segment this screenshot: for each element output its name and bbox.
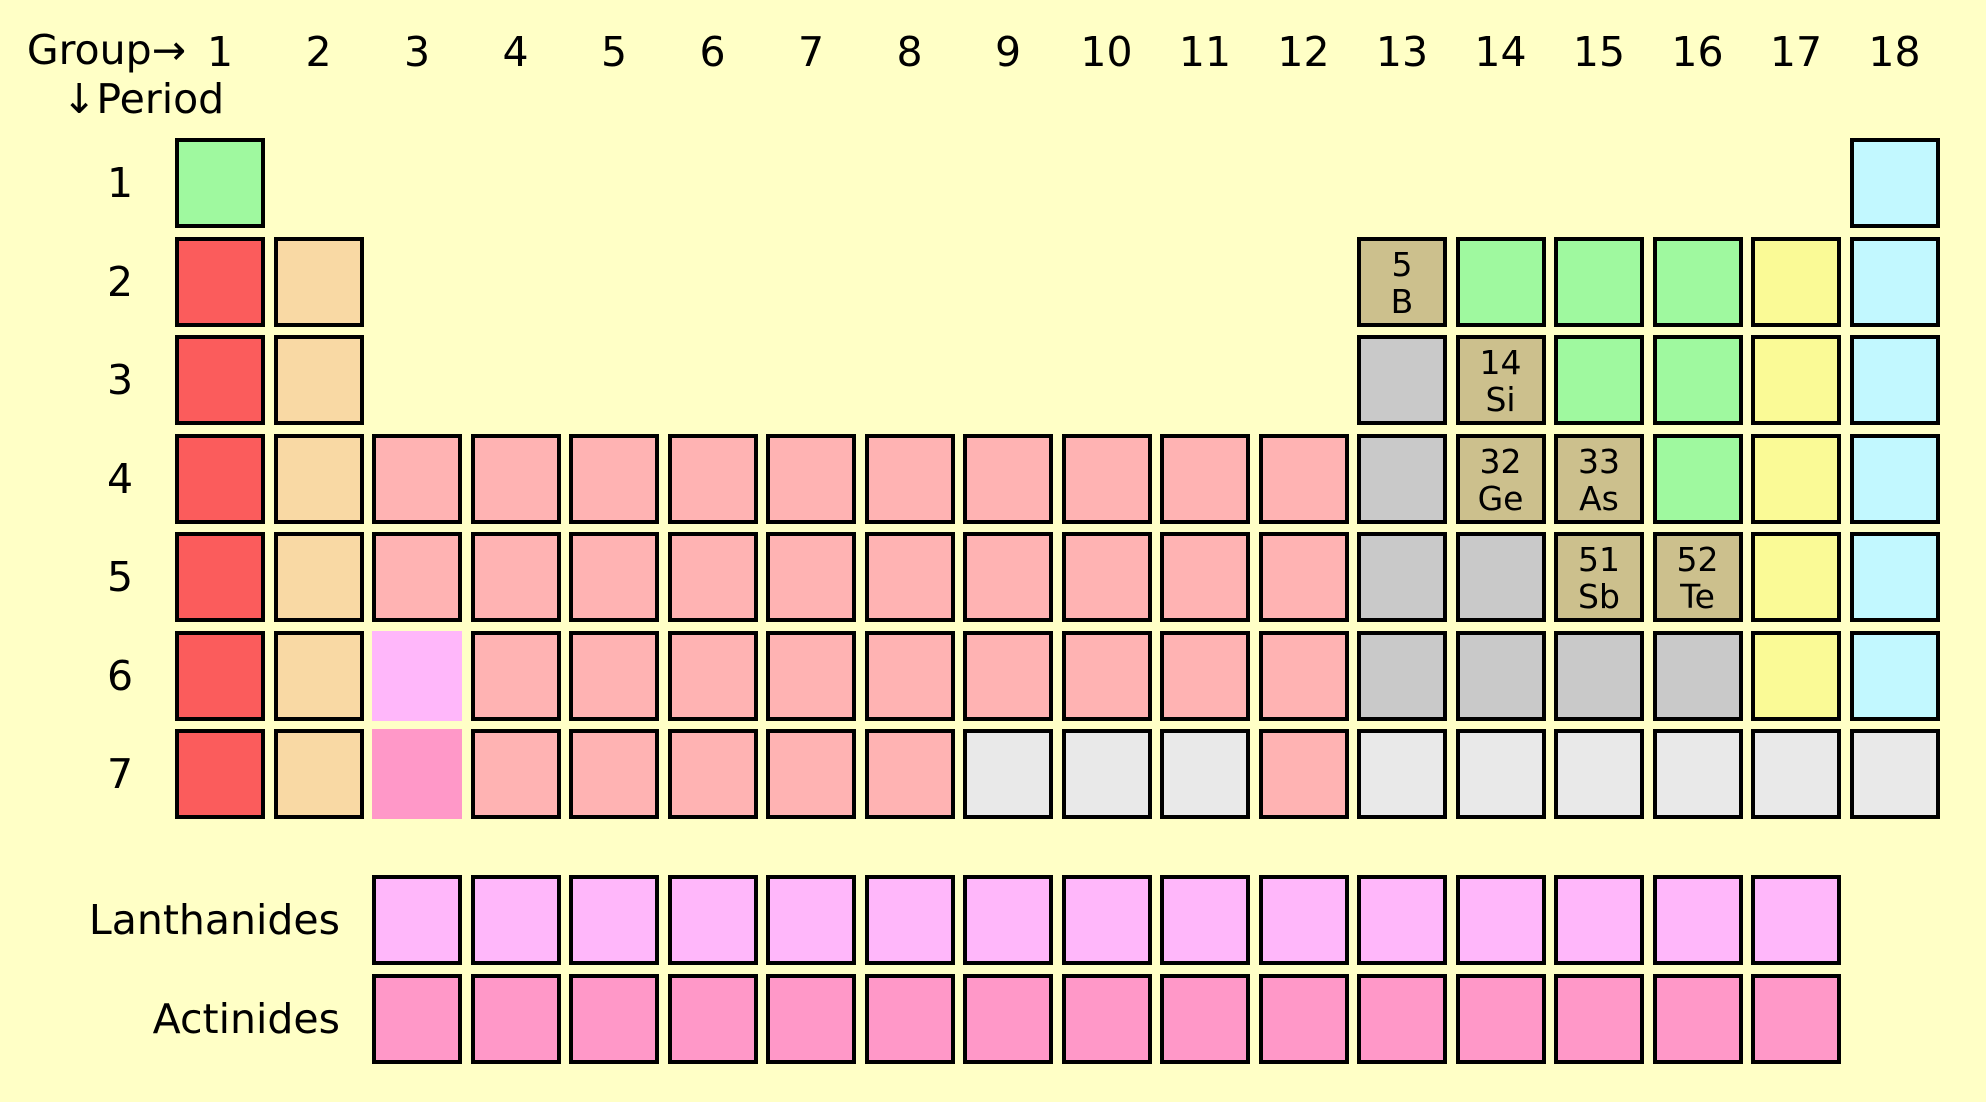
element-symbol: Si <box>1485 381 1515 418</box>
element-cell <box>175 434 265 524</box>
element-cell <box>1357 631 1447 721</box>
actinide-cell <box>569 974 659 1064</box>
group-number-label: 10 <box>1062 24 1152 80</box>
lanthanide-cell <box>1259 875 1349 965</box>
element-cell <box>1653 434 1743 524</box>
element-cell <box>668 631 758 721</box>
lanthanide-cell <box>1751 875 1841 965</box>
group-number-label: 9 <box>963 24 1053 80</box>
period-number-label: 7 <box>85 729 155 819</box>
actinide-cell <box>471 974 561 1064</box>
atomic-number: 14 <box>1480 344 1522 381</box>
element-cell <box>1160 532 1250 622</box>
element-cell <box>1751 434 1841 524</box>
group-number-label: 13 <box>1357 24 1447 80</box>
element-cell <box>766 434 856 524</box>
element-cell <box>274 729 364 819</box>
element-cell-te: 52Te <box>1653 532 1743 622</box>
element-cell <box>471 434 561 524</box>
element-symbol: As <box>1579 480 1619 517</box>
element-cell <box>1554 335 1644 425</box>
element-cell <box>1062 434 1152 524</box>
period-axis-label: ↓Period <box>62 76 224 122</box>
element-cell <box>471 532 561 622</box>
group-axis-label: Group→ <box>20 27 186 73</box>
element-cell-b: 5B <box>1357 237 1447 327</box>
element-cell <box>1653 237 1743 327</box>
element-cell <box>1357 335 1447 425</box>
atomic-number: 5 <box>1392 246 1413 283</box>
actinide-cell <box>1062 974 1152 1064</box>
actinide-cell <box>1751 974 1841 1064</box>
element-cell <box>1850 532 1940 622</box>
element-cell <box>1653 631 1743 721</box>
actinide-cell <box>372 974 462 1064</box>
element-cell <box>569 434 659 524</box>
actinide-cell <box>1653 974 1743 1064</box>
element-symbol: Ge <box>1478 480 1524 517</box>
element-cell <box>274 237 364 327</box>
element-cell <box>175 631 265 721</box>
actinide-cell <box>766 974 856 1064</box>
actinide-cell <box>963 974 1053 1064</box>
actinide-cell <box>1357 974 1447 1064</box>
element-cell <box>372 532 462 622</box>
lanthanide-cell <box>1062 875 1152 965</box>
element-cell <box>1850 434 1940 524</box>
element-symbol: Sb <box>1578 578 1620 615</box>
period-number-label: 3 <box>85 335 155 425</box>
element-cell <box>175 729 265 819</box>
element-cell <box>1357 532 1447 622</box>
element-cell <box>1160 631 1250 721</box>
element-cell <box>1751 335 1841 425</box>
element-cell <box>569 631 659 721</box>
actinide-cell <box>1160 974 1250 1064</box>
actinide-cell <box>1456 974 1546 1064</box>
period-number-label: 1 <box>85 138 155 228</box>
element-cell <box>1062 729 1152 819</box>
element-cell <box>766 532 856 622</box>
element-cell <box>1456 532 1546 622</box>
lanthanide-cell <box>1357 875 1447 965</box>
element-cell <box>963 729 1053 819</box>
element-cell <box>274 335 364 425</box>
lanthanide-cell <box>1653 875 1743 965</box>
lanthanide-cell <box>569 875 659 965</box>
element-cell <box>175 335 265 425</box>
atomic-number: 52 <box>1677 541 1719 578</box>
lanthanide-cell <box>471 875 561 965</box>
actinide-cell <box>865 974 955 1064</box>
element-cell <box>569 532 659 622</box>
element-cell <box>1160 434 1250 524</box>
element-cell <box>1259 631 1349 721</box>
group-number-label: 16 <box>1653 24 1743 80</box>
element-cell <box>471 631 561 721</box>
element-cell <box>1850 237 1940 327</box>
element-cell <box>1357 434 1447 524</box>
actinide-cell <box>1259 974 1349 1064</box>
element-cell <box>1751 729 1841 819</box>
element-cell <box>963 631 1053 721</box>
period-number-label: 6 <box>85 631 155 721</box>
element-cell <box>175 237 265 327</box>
element-cell <box>668 729 758 819</box>
actinide-cell <box>668 974 758 1064</box>
element-cell <box>865 729 955 819</box>
element-cell <box>274 631 364 721</box>
lanthanide-cell <box>1456 875 1546 965</box>
element-cell <box>175 138 265 228</box>
element-cell <box>372 729 462 819</box>
lanthanide-cell <box>372 875 462 965</box>
element-cell <box>1554 729 1644 819</box>
element-cell <box>1160 729 1250 819</box>
element-cell <box>1653 729 1743 819</box>
element-cell <box>274 532 364 622</box>
element-cell <box>1554 631 1644 721</box>
element-cell <box>963 434 1053 524</box>
group-number-label: 11 <box>1160 24 1250 80</box>
element-symbol: B <box>1391 283 1414 320</box>
element-cell <box>1259 434 1349 524</box>
element-cell <box>569 729 659 819</box>
element-cell <box>1062 532 1152 622</box>
element-cell <box>1357 729 1447 819</box>
lanthanide-cell <box>865 875 955 965</box>
element-cell <box>668 532 758 622</box>
element-cell <box>865 631 955 721</box>
group-number-label: 14 <box>1456 24 1546 80</box>
actinide-cell <box>1554 974 1644 1064</box>
lanthanide-cell <box>1554 875 1644 965</box>
period-axis-text: Period <box>96 75 224 123</box>
atomic-number: 33 <box>1578 443 1620 480</box>
group-axis-text: Group <box>27 26 152 74</box>
element-cell <box>274 434 364 524</box>
element-cell <box>1456 729 1546 819</box>
element-cell <box>1850 335 1940 425</box>
period-number-label: 4 <box>85 434 155 524</box>
group-number-label: 3 <box>372 24 462 80</box>
group-number-label: 4 <box>471 24 561 80</box>
element-cell <box>1259 532 1349 622</box>
group-number-label: 12 <box>1259 24 1349 80</box>
atomic-number: 32 <box>1480 443 1522 480</box>
group-number-label: 1 <box>175 24 265 80</box>
atomic-number: 51 <box>1578 541 1620 578</box>
periodic-table-diagram: Group→ ↓Period 1234567891011121314151617… <box>0 0 1986 1102</box>
element-cell <box>1751 631 1841 721</box>
lanthanide-cell <box>668 875 758 965</box>
element-cell <box>471 729 561 819</box>
element-cell <box>963 532 1053 622</box>
group-number-label: 15 <box>1554 24 1644 80</box>
element-cell-sb: 51Sb <box>1554 532 1644 622</box>
group-number-label: 18 <box>1850 24 1940 80</box>
actinides-label: Actinides <box>20 974 340 1064</box>
element-cell <box>1850 729 1940 819</box>
element-cell <box>1653 335 1743 425</box>
element-cell <box>372 434 462 524</box>
element-cell <box>1751 532 1841 622</box>
element-cell <box>865 532 955 622</box>
element-cell-ge: 32Ge <box>1456 434 1546 524</box>
lanthanides-label: Lanthanides <box>20 875 340 965</box>
lanthanide-cell <box>963 875 1053 965</box>
element-cell <box>372 631 462 721</box>
group-number-label: 17 <box>1751 24 1841 80</box>
element-cell-as: 33As <box>1554 434 1644 524</box>
group-number-label: 2 <box>274 24 364 80</box>
lanthanide-cell <box>1160 875 1250 965</box>
element-cell <box>175 532 265 622</box>
element-cell <box>1554 237 1644 327</box>
element-cell <box>865 434 955 524</box>
element-cell <box>1751 237 1841 327</box>
period-number-label: 5 <box>85 532 155 622</box>
element-cell-si: 14Si <box>1456 335 1546 425</box>
element-symbol: Te <box>1680 578 1715 615</box>
group-number-label: 7 <box>766 24 856 80</box>
element-cell <box>1850 138 1940 228</box>
group-number-label: 8 <box>865 24 955 80</box>
lanthanide-cell <box>766 875 856 965</box>
element-cell <box>1850 631 1940 721</box>
group-number-label: 6 <box>668 24 758 80</box>
element-cell <box>1259 729 1349 819</box>
down-arrow-icon: ↓ <box>62 75 96 123</box>
element-cell <box>766 631 856 721</box>
element-cell <box>668 434 758 524</box>
element-cell <box>1456 237 1546 327</box>
element-cell <box>766 729 856 819</box>
group-number-label: 5 <box>569 24 659 80</box>
element-cell <box>1456 631 1546 721</box>
period-number-label: 2 <box>85 237 155 327</box>
element-cell <box>1062 631 1152 721</box>
